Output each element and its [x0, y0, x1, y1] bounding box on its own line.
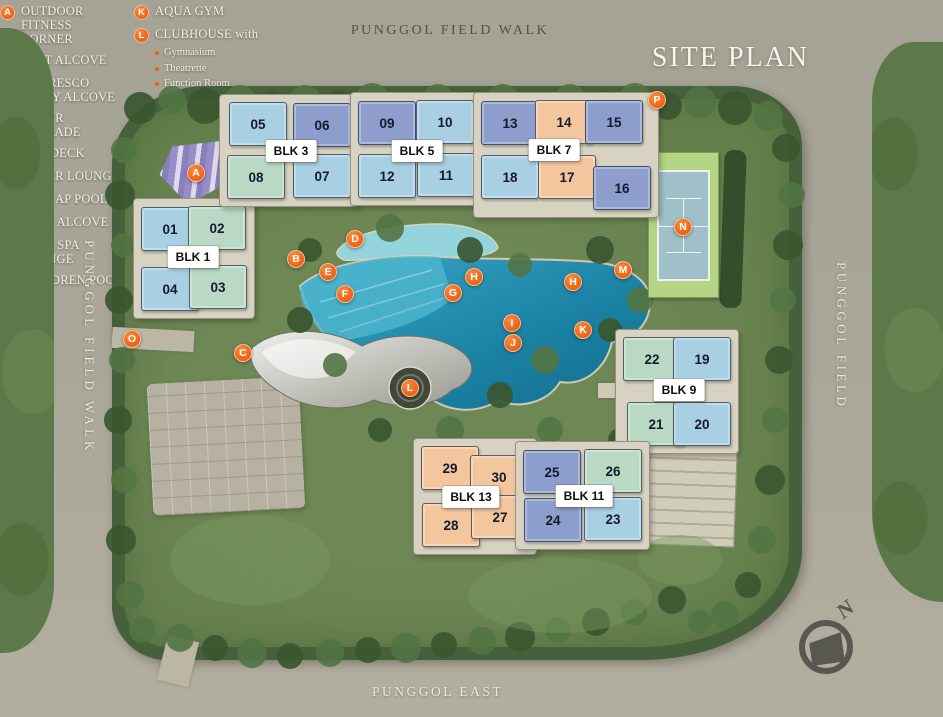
bullet-icon	[155, 82, 159, 86]
building-unit-18: 18	[481, 155, 539, 199]
block-label-blk-11: BLK 11	[556, 485, 613, 507]
page-title: SITE PLAN	[648, 42, 813, 74]
block-label-blk-3: BLK 3	[266, 140, 317, 162]
building-unit-02: 02	[188, 206, 246, 250]
map-marker-h: H	[465, 268, 483, 286]
compass-needle-icon	[808, 631, 845, 666]
building-unit-17: 17	[538, 155, 596, 199]
legend-marker-l: L	[134, 28, 149, 43]
map-marker-b: B	[287, 250, 305, 268]
map-marker-d: D	[346, 230, 364, 248]
map-marker-c: C	[234, 344, 252, 362]
legend-label: OUTDOOR FITNESS CORNER	[21, 4, 124, 46]
map-marker-i: I	[503, 314, 521, 332]
map-marker-n: N	[674, 218, 692, 236]
building-unit-10: 10	[416, 100, 474, 144]
building-unit-20: 20	[673, 402, 731, 446]
green-verge-left	[0, 28, 54, 653]
map-marker-f: F	[336, 285, 354, 303]
carpark-roof	[646, 444, 737, 547]
map-marker-g: G	[444, 284, 462, 302]
map-marker-m: M	[614, 261, 632, 279]
street-label-left: PUNGGOL FIELD WALK	[81, 240, 97, 570]
legend-marker-a: A	[0, 5, 15, 20]
map-marker-h: H	[564, 273, 582, 291]
map-marker-p: P	[648, 91, 666, 109]
legend-item-l: LCLUBHOUSE with	[134, 27, 284, 43]
bullet-icon	[155, 67, 159, 71]
bullet-icon	[155, 51, 159, 55]
legend-label: AQUA GYM	[155, 4, 224, 18]
legend-label: CLUBHOUSE with	[155, 27, 258, 41]
map-marker-l: L	[401, 379, 419, 397]
block-label-blk-9: BLK 9	[654, 379, 705, 401]
compass-north-label: N	[833, 594, 858, 625]
map-marker-a: A	[187, 164, 205, 182]
street-label-top: PUNGGOL FIELD WALK	[340, 23, 560, 39]
legend-subitem: Theatrette	[155, 63, 284, 75]
map-marker-j: J	[504, 334, 522, 352]
legend-sublabel: Theatrette	[164, 63, 207, 75]
building-unit-16: 16	[593, 166, 651, 210]
green-verge-right	[872, 42, 943, 602]
block-label-blk-1: BLK 1	[168, 246, 219, 268]
map-marker-o: O	[123, 330, 141, 348]
block-label-blk-7: BLK 7	[529, 139, 580, 161]
legend-marker-k: K	[134, 5, 149, 20]
legend-subitem: Gymnasium	[155, 47, 284, 59]
paved-plaza	[147, 376, 306, 516]
legend-item-k: KAQUA GYM	[134, 4, 284, 20]
legend-sublabel: Gymnasium	[164, 47, 215, 59]
map-marker-k: K	[574, 321, 592, 339]
map-marker-e: E	[319, 263, 337, 281]
north-compass-icon	[799, 620, 853, 674]
block-label-blk-5: BLK 5	[392, 140, 443, 162]
street-label-right: PUNGGOL FIELD	[833, 262, 849, 462]
building-unit-03: 03	[189, 265, 247, 309]
block-label-blk-13: BLK 13	[442, 486, 499, 508]
street-label-bottom: PUNGGOL EAST	[372, 684, 502, 700]
building-unit-09: 09	[358, 101, 416, 145]
site-plan-page: 01020403BLK 105060807BLK 309101211BLK 51…	[0, 0, 943, 717]
building-unit-15: 15	[585, 100, 643, 144]
building-unit-19: 19	[673, 337, 731, 381]
